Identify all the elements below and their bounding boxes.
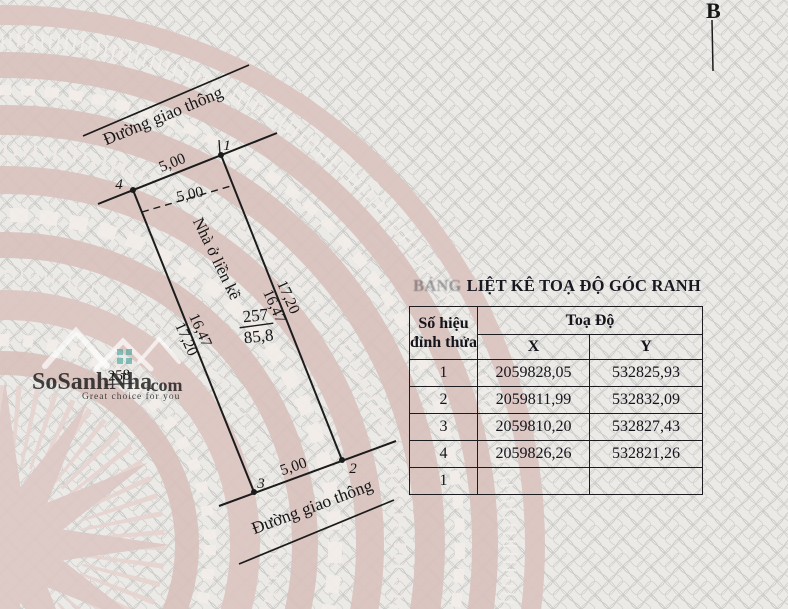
y-coord-cell bbox=[590, 468, 703, 495]
x-column-header: X bbox=[478, 335, 590, 360]
y-column-header: Y bbox=[590, 335, 703, 360]
vertex-4-label: 4 bbox=[115, 177, 123, 193]
frontage-inner-dim: 5,00 bbox=[175, 183, 205, 206]
coordinate-table: Số hiệu đỉnh thửa Toạ Độ X Y 1 2059828,0… bbox=[409, 306, 703, 495]
coord-group-header: Toạ Độ bbox=[478, 307, 703, 335]
table-row: 3 2059810,20 532827,43 bbox=[410, 414, 703, 441]
top-road-label: Đường giao thông bbox=[100, 82, 226, 149]
vertex-header-line1: Số hiệu bbox=[418, 315, 468, 332]
vertex-1-label: 1 bbox=[223, 138, 231, 154]
vertex-id-cell: 3 bbox=[410, 414, 478, 441]
x-coord-cell: 2059826,26 bbox=[478, 441, 590, 468]
vertex-id-cell: 1 bbox=[410, 360, 478, 387]
vertex-column-header: Số hiệu đỉnh thửa bbox=[410, 307, 478, 360]
y-coord-cell: 532821,26 bbox=[590, 441, 703, 468]
y-coord-cell: 532825,93 bbox=[590, 360, 703, 387]
y-coord-cell: 532827,43 bbox=[590, 414, 703, 441]
table-title-text: LIỆT KÊ TOẠ ĐỘ GÓC RANH bbox=[467, 276, 701, 295]
plot-number-label: 257 bbox=[242, 305, 270, 327]
bottom-road-label: Đường giao thông bbox=[249, 475, 376, 539]
vertex-3-label: 3 bbox=[256, 476, 265, 492]
vertex-1-tick bbox=[219, 140, 220, 154]
vertex-2-dot bbox=[339, 457, 345, 463]
table-row: 1 bbox=[410, 468, 703, 495]
house-type-label: Nhà ở liền kề bbox=[189, 214, 245, 302]
vertex-4-dot bbox=[130, 187, 136, 193]
x-coord-cell: 2059828,05 bbox=[478, 360, 590, 387]
vertex-2-label: 2 bbox=[349, 461, 357, 477]
vertex-3-dot bbox=[251, 489, 257, 495]
vertex-header-line2: đỉnh thửa bbox=[410, 334, 477, 351]
x-coord-cell: 2059811,99 bbox=[478, 387, 590, 414]
plot-area-label: 85,8 bbox=[243, 325, 275, 347]
north-label: B bbox=[706, 0, 721, 23]
table-row: 1 2059828,05 532825,93 bbox=[410, 360, 703, 387]
vertex-id-cell: 1 bbox=[410, 468, 478, 495]
vertex-id-cell: 2 bbox=[410, 387, 478, 414]
adjacent-plot: 258 bbox=[104, 367, 135, 385]
table-title: BẢNGLIỆT KÊ TOẠ ĐỘ GÓC RANH bbox=[409, 276, 705, 296]
adjacent-plot-number: 258 bbox=[107, 367, 130, 384]
y-coord-cell: 532832,09 bbox=[590, 387, 703, 414]
x-coord-cell: 2059810,20 bbox=[478, 414, 590, 441]
coordinate-table-section: BẢNGLIỆT KÊ TOẠ ĐỘ GÓC RANH Số hiệu đỉnh… bbox=[409, 276, 705, 495]
land-survey-document: SoSanhNha .com Great choice for you B Đư… bbox=[0, 0, 788, 609]
north-arrow-line bbox=[712, 20, 713, 71]
table-row: 4 2059826,26 532821,26 bbox=[410, 441, 703, 468]
table-row: 2 2059811,99 532832,09 bbox=[410, 387, 703, 414]
vertex-id-cell: 4 bbox=[410, 441, 478, 468]
table-title-prefix: BẢNG bbox=[413, 276, 461, 295]
frontage-top-dim: 5,00 bbox=[157, 150, 189, 176]
x-coord-cell bbox=[478, 468, 590, 495]
